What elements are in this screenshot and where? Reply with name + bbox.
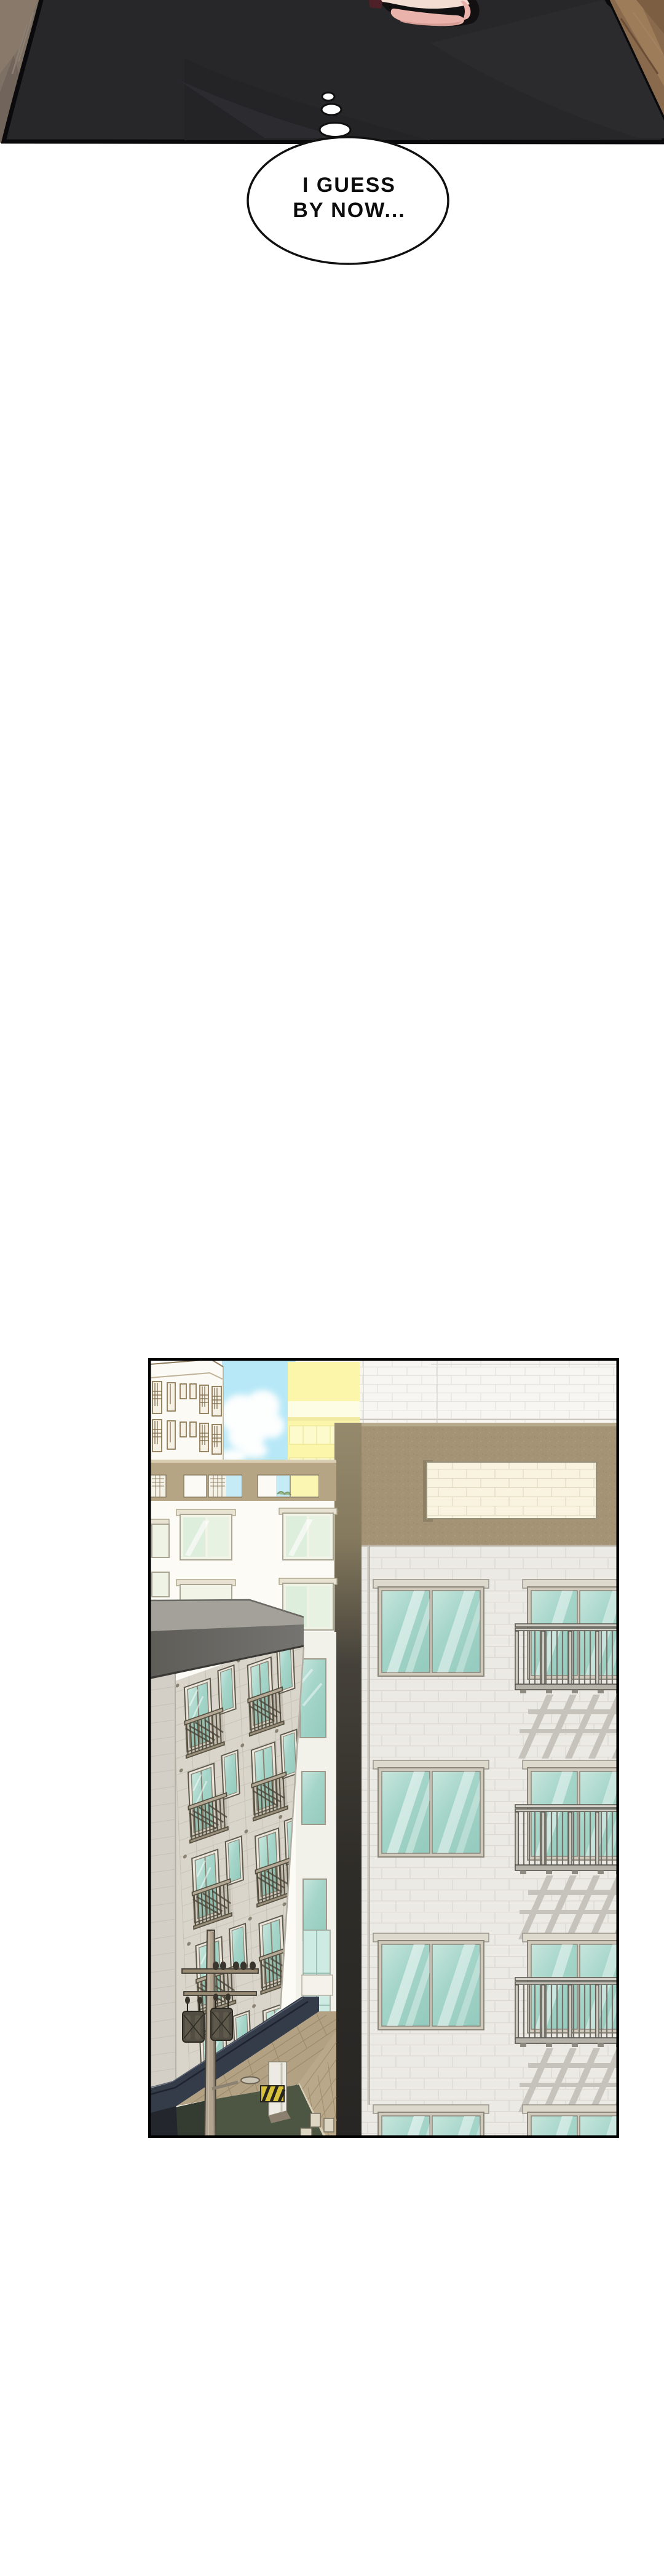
svg-text:BY NOW...: BY NOW... — [293, 199, 406, 222]
svg-text:I GUESS: I GUESS — [302, 173, 396, 197]
